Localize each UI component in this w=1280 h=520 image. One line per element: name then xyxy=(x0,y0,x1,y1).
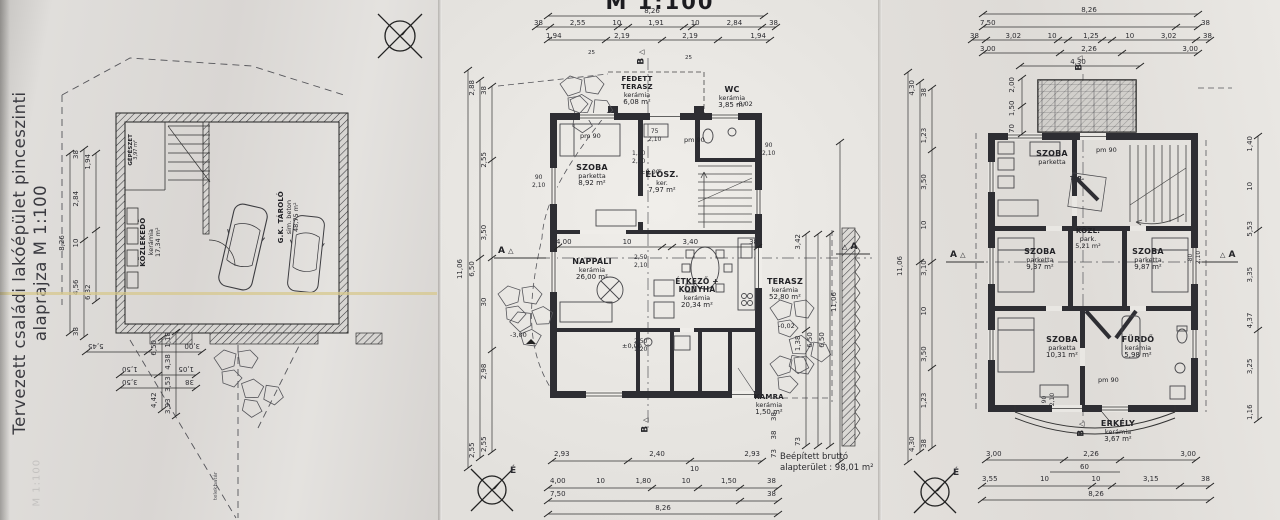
room-area: 5,21 m² xyxy=(1064,243,1112,250)
upper-plan-drawing xyxy=(880,0,1280,520)
room-area: 6,08 m² xyxy=(609,99,665,107)
dim-value: 38 xyxy=(72,327,81,336)
dim-value: 38 xyxy=(534,19,543,28)
dim-value: 3,93 xyxy=(164,398,173,414)
door-size-pair: 902,10 xyxy=(1041,393,1056,406)
room-finish: parketta xyxy=(1026,159,1078,166)
retaining-wall-hatch xyxy=(842,228,855,446)
dim-value: 2,10 xyxy=(648,136,661,144)
dim-value: 90 xyxy=(1041,396,1049,404)
dim-value: 10 xyxy=(920,307,929,316)
room-label-tar: TÁR. xyxy=(1070,176,1084,182)
section-triangle-icon: △ xyxy=(1220,251,1225,259)
dim-value: 38 xyxy=(767,477,776,486)
room-area: 17,34 m² xyxy=(155,208,162,276)
dim-total-bottom: 8,26 xyxy=(550,504,776,513)
dim-value: 38 xyxy=(767,490,776,499)
dim-value: 1,80 xyxy=(635,477,651,486)
dim-value: 4,30 xyxy=(908,436,917,452)
dim-value: 38 xyxy=(1203,32,1212,41)
door-gap xyxy=(638,196,643,222)
dim-value: 1,94 xyxy=(750,32,766,41)
dim-value: 2,19 xyxy=(614,32,630,41)
section-letter: A xyxy=(498,246,505,256)
room-area: 10,31 m² xyxy=(1034,352,1090,360)
dim-value: 2,55 xyxy=(480,152,489,168)
dim-value: 1,38 xyxy=(794,336,803,352)
dim-value: 10 xyxy=(72,239,81,248)
dim-value: 4,30 xyxy=(908,80,917,96)
dim-chain-right-mid2: 6,50 xyxy=(818,234,827,446)
section-letter: A xyxy=(950,250,957,260)
room-label-erkely: ERKÉLY kerámia 3,67 m² xyxy=(1090,420,1146,444)
dim-value: 4,00 xyxy=(556,238,572,247)
dim-value: 2,00 xyxy=(1008,77,1017,93)
dim-small: 60 xyxy=(1080,463,1089,471)
level-minus300: -3,00 xyxy=(510,331,527,339)
section-letter: B xyxy=(1077,430,1087,437)
note-line2: alapterület : 98,01 m² xyxy=(780,463,878,474)
section-triangle-icon: △ xyxy=(638,49,646,54)
room-area: 7,97 m² xyxy=(636,187,688,195)
gross-area-note: Beépített bruttó alapterület : 98,01 m² xyxy=(780,452,878,475)
section-marker-b-bottom: B △ xyxy=(1077,421,1087,436)
dim-value: 4,38 xyxy=(164,354,173,370)
door-gap xyxy=(1130,226,1146,231)
dim-value: 1,50 xyxy=(721,477,737,486)
section-marker-b-top: B △ xyxy=(1075,55,1085,70)
room-area: 3,67 m² xyxy=(1090,436,1146,444)
room-area: 48,75 m² xyxy=(293,185,300,249)
dim-value: 6,50 xyxy=(806,332,815,348)
dim-value: 10 xyxy=(1048,32,1057,41)
dim-value: 3,02 xyxy=(1006,32,1022,41)
room-label-terasz: TERASZ kerámia 52,80 m² xyxy=(757,278,813,302)
dim-chain-basement-side-a: 4,426,50 xyxy=(150,340,159,408)
dim-value: 38 xyxy=(920,88,929,97)
dim-value: 1,20 xyxy=(634,346,647,354)
boundary-label: telekhatár xyxy=(213,472,219,500)
dim-chain-top3: 3,002,263,00 xyxy=(980,45,1198,54)
dim-value: 2,10 xyxy=(632,158,645,166)
section-marker-a-right: △ A xyxy=(842,242,858,252)
dim-value: 3,00 xyxy=(1182,45,1198,54)
dim-total-left: 11,06 xyxy=(456,70,465,468)
dim-value: 2,10 xyxy=(1049,393,1057,406)
door-size-pair: 902,10 xyxy=(532,174,545,189)
room-label-kozlekedo: KÖZLEKEDŐ kerámia 17,34 m² xyxy=(140,208,162,276)
dim-value: 10 xyxy=(596,477,605,486)
dim-value: 80 xyxy=(1187,254,1195,262)
dim-value: 1,23 xyxy=(920,393,929,409)
dim-chain-right: 1,163,254,373,355,53101,40 xyxy=(1246,136,1255,420)
room-area: 20,34 m² xyxy=(666,302,728,310)
dim-value: 2,40 xyxy=(649,450,665,459)
dim-value: 3,50 xyxy=(122,377,138,386)
dim-value: 2,19 xyxy=(682,32,698,41)
dim-value: 8,26 xyxy=(1081,6,1097,15)
dim-value: 1,50 xyxy=(122,364,138,373)
dim-value: 38 xyxy=(72,150,81,159)
dim-value: 3,00 xyxy=(980,45,996,54)
panel-basement-plan: Tervezett családi lakóépület pinceszinti… xyxy=(0,0,440,520)
dim-total-top: 8,26 xyxy=(540,7,764,16)
basement-title: Tervezett családi lakóépület pinceszinti… xyxy=(10,88,54,438)
dim-value: 2,93 xyxy=(554,450,570,459)
room-label-kozl: KÖZL. park. 5,21 m² xyxy=(1064,228,1112,250)
section-triangle-icon: △ xyxy=(508,247,513,255)
door-size-pair: 902,10 xyxy=(762,142,775,157)
scan-edge-shadow xyxy=(0,0,10,520)
dim-value: 38 xyxy=(770,431,779,440)
dim-value: 6,50 xyxy=(150,340,159,356)
dim-value: 2,50 xyxy=(634,254,647,262)
dim-value: 3,50 xyxy=(480,225,489,241)
dim-value: 3,50 xyxy=(920,174,929,190)
section-marker-b-bottom: B △ xyxy=(641,417,651,432)
dim-value: 3,50 xyxy=(920,346,929,362)
dim-value: 38 xyxy=(920,439,929,448)
door-size-pair: 2,502,10 xyxy=(634,254,647,269)
section-triangle-icon: △ xyxy=(642,417,650,422)
panel-upper-floor-plan: 8,26 7,5038 383,02101,25103,0238 3,002,2… xyxy=(880,0,1280,520)
dim-value: 7,50 xyxy=(980,19,996,28)
note-line1: Beépített bruttó xyxy=(780,452,878,463)
dim-chain-bottom1: 2,932,402,93 xyxy=(554,450,760,459)
north-compass-icon xyxy=(471,469,513,511)
dim-total-basement: 8,26 xyxy=(58,154,67,332)
dim-value: 2,10 xyxy=(1195,251,1203,264)
dim-value: 10 xyxy=(612,19,621,28)
section-letter: B xyxy=(641,426,651,433)
section-letter: A xyxy=(1229,250,1236,260)
level-marker-icon xyxy=(526,339,536,344)
dim-chain-basement-a: 384,56102,8438 xyxy=(72,150,81,336)
door-gap xyxy=(1072,196,1077,216)
dim-chain-left: 381,233,50103,10103,501,2338 xyxy=(920,88,929,448)
dim-value: 75 xyxy=(651,128,659,136)
section-triangle-icon: △ xyxy=(842,243,847,251)
dim-value: 6,50 xyxy=(818,332,827,348)
dim-value: 8,26 xyxy=(655,504,671,513)
staircase xyxy=(1130,145,1186,225)
dim-value: 3,00 xyxy=(184,341,200,350)
room-area: 5,98 m² xyxy=(1110,352,1166,360)
page-seam xyxy=(878,0,882,520)
dim-chain-top2: 1,942,192,191,94 xyxy=(546,32,766,41)
dim-chain-bottom2: 4,00101,80101,5038 xyxy=(550,477,776,486)
section-triangle-icon: △ xyxy=(960,251,965,259)
dim-chain-bottom1: 3,002,263,00 xyxy=(986,450,1196,459)
dim-value: 2,93 xyxy=(744,450,760,459)
dim-value: 3,15 xyxy=(1143,475,1159,484)
dim-value: 5,53 xyxy=(1246,221,1255,237)
room-area: 8,92 m² xyxy=(564,180,620,188)
dim-value: 38 xyxy=(1201,475,1210,484)
room-area: 52,80 m² xyxy=(757,294,813,302)
parapet-mark: pm 90 xyxy=(684,136,705,144)
dim-value: 10 xyxy=(1092,475,1101,484)
dim-total-top: 8,26 xyxy=(980,6,1198,15)
dim-value: 2,10 xyxy=(634,262,647,270)
section-marker-a-left: A △ xyxy=(950,250,966,260)
dim-value: 2,55 xyxy=(570,19,586,28)
room-label-szoba-top: SZOBA parketta xyxy=(1026,150,1078,166)
north-compass-icon xyxy=(378,14,422,58)
section-letter: B xyxy=(1075,64,1085,71)
dim-value: 8,26 xyxy=(644,7,660,16)
dim-value: 3,02 xyxy=(1161,32,1177,41)
door-size-pair: 752,10 xyxy=(648,128,661,143)
door-gap xyxy=(1046,306,1062,311)
dim-value: 10 xyxy=(691,19,700,28)
dim-value: 11,06 xyxy=(830,292,839,312)
room-label-fedett-terasz: FEDETT TERASZ kerámia 6,08 m² xyxy=(609,76,665,107)
dim-chain-top1: 7,5038 xyxy=(980,19,1210,28)
dim-value: 73 xyxy=(794,437,803,446)
section-marker-a-left: A △ xyxy=(498,246,514,256)
door-size-pair: 1,002,10 xyxy=(632,150,645,165)
dim-value: 1,94 xyxy=(546,32,562,41)
dim-value: 38 xyxy=(970,32,979,41)
dim-chain-left-mid: 4,304,30 xyxy=(908,80,917,452)
dim-value: 2,98 xyxy=(480,364,489,380)
dim-value: 30 xyxy=(480,298,489,307)
room-label-szoba-bottom: SZOBA parketta 10,31 m² xyxy=(1034,336,1090,360)
dim-chain-basement-side-b: 3,933,534,381,18 xyxy=(164,332,173,414)
dim-value: 10 xyxy=(1040,475,1049,484)
dim-value: 38 xyxy=(185,377,194,386)
room-label-nappali: NAPPALI kerámia 26,00 m² xyxy=(560,258,624,282)
dim-value: 6,50 xyxy=(468,261,477,277)
room-label-etkezo-konyha: ÉTKEZŐ + KONYHA kerámia 20,34 m² xyxy=(666,278,728,310)
dim-value: 2,10 xyxy=(762,150,775,158)
dim-value: 10 xyxy=(623,238,632,247)
north-compass-icon xyxy=(914,471,956,513)
dim-value: 10 xyxy=(1246,182,1255,191)
dim-value: 1,91 xyxy=(648,19,664,28)
room-label-szoba-left: SZOBA parketta 9,37 m² xyxy=(1012,248,1068,272)
dim-value: 3,10 xyxy=(920,260,929,276)
slope-zigzag xyxy=(855,230,860,440)
dim-value: 3,55 xyxy=(982,475,998,484)
room-label-gepeszet: GÉPÉSZET 3,97 m² xyxy=(128,122,140,178)
dim-value: 10 xyxy=(682,477,691,486)
dim-value: 1,16 xyxy=(1246,404,1255,420)
room-area: 9,37 m² xyxy=(1012,264,1068,272)
level-minus02: -0,02 xyxy=(736,100,753,108)
dim-total-right: 11,06 xyxy=(830,142,839,462)
room-label-garazs: G.K. TÁROLÓ sim. beton 48,75 m² xyxy=(278,185,300,249)
dim-value: 4,42 xyxy=(150,392,159,408)
dim-chain-basement-b: 6,321,94 xyxy=(84,154,93,300)
dim-value: 1,18 xyxy=(164,332,173,348)
room-label-szoba-right: SZOBA parketta 9,87 m² xyxy=(1120,248,1176,272)
section-marker-b-top: B △ xyxy=(637,49,647,64)
dim-value: 3,35 xyxy=(1246,267,1255,283)
dim-value: 3,42 xyxy=(794,234,803,250)
dim-value: 73 xyxy=(770,449,779,458)
door-gap xyxy=(1130,306,1146,311)
room-label-szoba: SZOBA parketta 8,92 m² xyxy=(564,164,620,188)
dim-value: 70 xyxy=(1008,124,1017,133)
dim-value: 2,55 xyxy=(468,442,477,458)
section-triangle-icon: △ xyxy=(1076,55,1084,60)
dim-value: 11,06 xyxy=(456,259,465,279)
dim-value: 11,06 xyxy=(896,256,905,276)
dim-small-25: 25 xyxy=(588,50,595,56)
dim-value: 3,00 xyxy=(1180,450,1196,459)
dim-value: 10 xyxy=(1125,32,1134,41)
door-gap xyxy=(1046,226,1062,231)
dim-value: 2,50 xyxy=(634,338,647,346)
dim-value: 1,50 xyxy=(1008,101,1017,117)
dim-value: 2,10 xyxy=(532,182,545,190)
dim-value: 3,40 xyxy=(682,238,698,247)
dim-chain-top: 382,55101,91102,8438 xyxy=(534,19,778,28)
chimney-block xyxy=(1038,80,1136,132)
dim-value: 2,84 xyxy=(72,191,81,207)
parapet-mark: pm 90 xyxy=(1098,376,1119,384)
dim-value: 3,53 xyxy=(164,376,173,392)
dim-value: 8,26 xyxy=(1088,490,1104,499)
dim-small-25: 25 xyxy=(685,55,692,61)
dim-value: 38 xyxy=(1201,19,1210,28)
door-gap xyxy=(680,328,694,332)
dim-value: 38 xyxy=(769,19,778,28)
dim-value: 2,26 xyxy=(1081,45,1097,54)
room-area: 9,87 m² xyxy=(1120,264,1176,272)
room-name: ÉTKEZŐ + KONYHA xyxy=(666,278,728,295)
room-label-furdo: FÜRDŐ kerámia 5,98 m² xyxy=(1110,336,1166,360)
section-marker-a-right: △ A xyxy=(1220,250,1236,260)
dim-value: 1,23 xyxy=(920,128,929,144)
dim-chain-left-small: 701,502,00 xyxy=(1008,77,1017,133)
title-line1: Tervezett családi lakóépület xyxy=(10,191,29,435)
dim-value: 8,26 xyxy=(58,235,67,251)
dim-value: 38 xyxy=(480,86,489,95)
dim-chain-top2: 383,02101,25103,0238 xyxy=(970,32,1212,41)
dim-value: 2,26 xyxy=(1083,450,1099,459)
dim-value: 2,55 xyxy=(480,436,489,452)
dim-value: 1,05 xyxy=(178,364,194,373)
dim-value: 4,00 xyxy=(550,477,566,486)
dim-chain-bottom2: 3,5510103,1538 xyxy=(982,475,1210,484)
dim-value: 2,84 xyxy=(727,19,743,28)
dim-chain-left-mid: 2,556,502,88 xyxy=(468,80,477,458)
room-area: 26,00 m² xyxy=(560,274,624,282)
opening-gap xyxy=(580,230,626,234)
dim-chain-right-mid: 6,50 xyxy=(806,234,815,446)
page-seam xyxy=(438,0,442,520)
dim-small: 10 xyxy=(690,465,699,473)
dim-value: 90 xyxy=(535,174,543,182)
north-letter: É xyxy=(953,468,959,478)
dim-chain-basement-bottom-a: 3,005,45 xyxy=(88,341,200,350)
parapet-mark: pm 90 xyxy=(1096,146,1117,154)
level-zero: ±0,00 xyxy=(640,168,660,176)
openings xyxy=(988,133,1198,412)
dim-chain-inner: 4,00103,4038 xyxy=(556,238,758,247)
dim-value: 4,37 xyxy=(1246,313,1255,329)
dim-chain-right-small: 733838 xyxy=(770,412,779,458)
dim-value: 38 xyxy=(770,412,779,421)
dim-value: 7,50 xyxy=(550,490,566,499)
dim-total-left: 11,06 xyxy=(896,70,905,462)
dim-value: 5,45 xyxy=(88,341,104,350)
staircase xyxy=(698,166,752,228)
dim-value: 1,40 xyxy=(1246,136,1255,152)
room-area: 3,97 m² xyxy=(134,122,140,178)
dim-chain-left: 2,552,98303,502,5538 xyxy=(480,86,489,452)
level-minus02: -0,02 xyxy=(778,322,795,330)
dim-value: 1,25 xyxy=(1083,32,1099,41)
dim-chain-bottom3: 7,5038 xyxy=(550,490,776,499)
room-name: FEDETT TERASZ xyxy=(609,76,665,92)
fold-crease-line xyxy=(0,292,437,295)
section-letter: B xyxy=(637,58,647,65)
upper-outer-walls xyxy=(988,133,1198,412)
dim-value: 3,00 xyxy=(986,450,1002,459)
parapet-mark: pm 90 xyxy=(580,132,601,140)
dim-chain-right: 731,383,42 xyxy=(794,234,803,446)
dim-value: 3,25 xyxy=(1246,359,1255,375)
dim-value: 1,00 xyxy=(632,150,645,158)
north-letter: É xyxy=(510,466,516,476)
room-label-kamra: KAMRA kerámia 1,50 m² xyxy=(740,394,798,417)
ground-interior-walls xyxy=(557,120,755,391)
dim-value: 38 xyxy=(749,238,758,247)
section-triangle-icon: △ xyxy=(1078,421,1086,426)
dim-value: 90 xyxy=(765,142,773,150)
dim-value: 2,88 xyxy=(468,80,477,96)
dim-value: 1,94 xyxy=(84,154,93,170)
dim-value: 10 xyxy=(920,221,929,230)
door-size-pair: 2,501,20 xyxy=(634,338,647,353)
upper-interior-walls xyxy=(995,140,1191,405)
door-size-pair: 802,10 xyxy=(1187,251,1202,264)
scanned-floorplan-sheet: Tervezett családi lakóépület pinceszinti… xyxy=(0,0,1280,520)
room-area: 1,50 m² xyxy=(740,409,798,417)
panel-ground-floor-plan: M 1:100 8,26 382,55101,91102,8438 1,942,… xyxy=(440,0,880,520)
dim-total-bottom: 8,26 xyxy=(982,490,1210,499)
section-letter: A xyxy=(851,242,858,252)
